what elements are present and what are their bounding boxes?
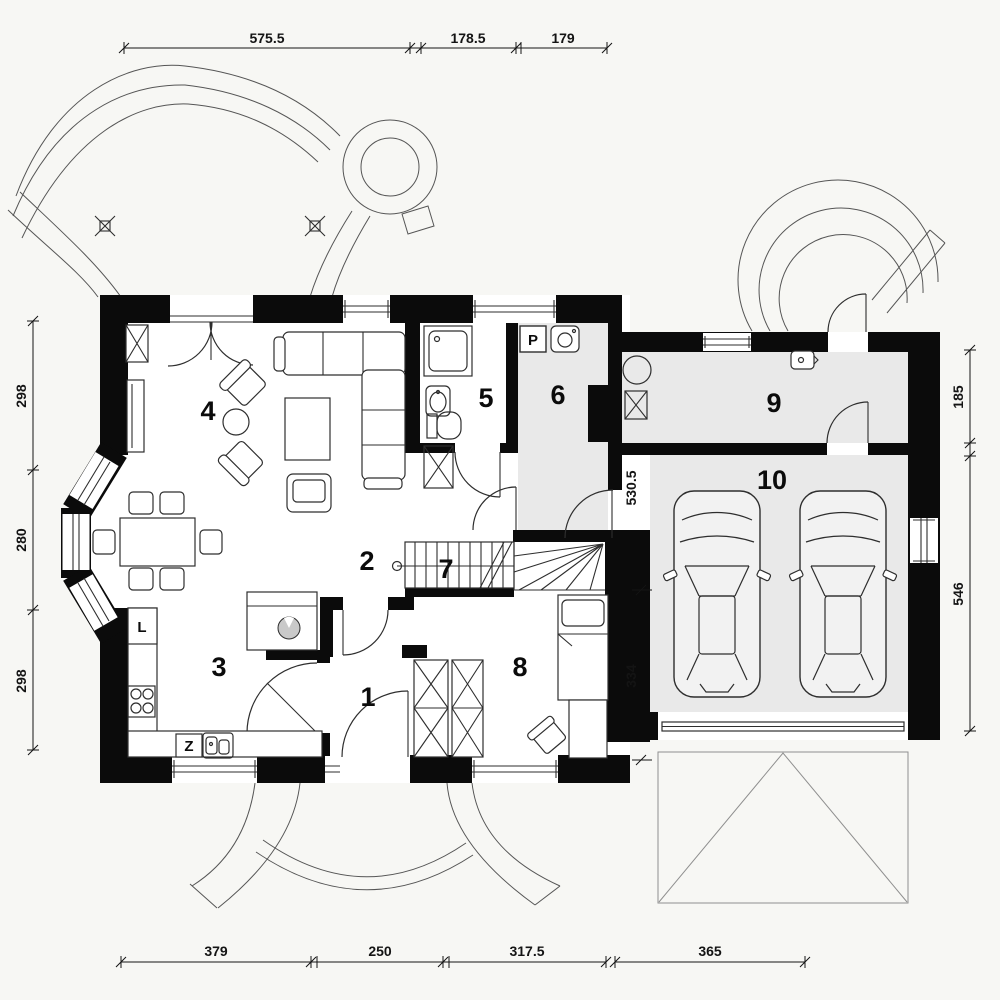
chair xyxy=(160,492,184,514)
room-label-9: 9 xyxy=(766,388,781,418)
path-end-cap xyxy=(402,206,434,234)
dimension-chain-bottom: 379 250 317.5 365 xyxy=(116,943,810,968)
chair xyxy=(200,530,222,554)
wardrobe xyxy=(452,660,483,757)
window xyxy=(703,333,751,351)
dimension-label: 546 xyxy=(950,582,966,606)
dimension-label: 365 xyxy=(698,943,722,959)
door-boiler-exterior xyxy=(828,294,866,332)
room-label-3: 3 xyxy=(211,652,226,682)
small-armchair xyxy=(287,474,331,512)
dining-table xyxy=(120,518,195,566)
landscaping-path-right xyxy=(738,180,945,331)
garage-door xyxy=(658,713,908,739)
fridge-marker: L xyxy=(137,619,146,636)
room-label-7: 7 xyxy=(438,554,453,584)
built-in-wardrobes xyxy=(414,660,483,757)
kitchen-counter-bottom xyxy=(128,731,322,757)
coffee-table xyxy=(285,398,330,460)
dimension-label: 530.5 xyxy=(623,470,639,505)
dishwasher-marker: Z xyxy=(184,738,193,755)
spiral-path-outer xyxy=(343,120,437,214)
dimension-chain-right: 185 546 xyxy=(950,345,976,736)
landscaping-terrace-arcs xyxy=(190,783,560,908)
floor-plan-page: L Z xyxy=(0,0,1000,1000)
room-label-6: 6 xyxy=(550,380,565,410)
boiler-room-shaded-floor xyxy=(622,352,908,443)
dresser xyxy=(569,700,607,758)
dimension-label: 185 xyxy=(950,385,966,409)
floor-plan-canvas: L Z xyxy=(0,0,1000,1000)
room-label-1: 1 xyxy=(360,682,375,712)
room-label-10: 10 xyxy=(757,465,787,495)
bed xyxy=(558,595,608,700)
spiral-path-inner xyxy=(361,138,419,196)
window xyxy=(343,296,390,322)
dimension-label: 298 xyxy=(13,384,29,408)
window xyxy=(325,756,340,782)
washing-machine xyxy=(551,326,579,352)
room-label-5: 5 xyxy=(478,383,493,413)
dimension-chain-top: 575.5 178.5 179 xyxy=(119,30,612,54)
dimension-chain-left: 298 280 298 xyxy=(13,316,39,755)
chair xyxy=(93,530,115,554)
window xyxy=(910,518,938,563)
dimension-label: 298 xyxy=(13,669,29,693)
dimension-label: 317.5 xyxy=(509,943,544,959)
dimension-label: 379 xyxy=(204,943,228,959)
chair xyxy=(129,492,153,514)
dimension-label: 334 xyxy=(623,664,639,688)
car-icon xyxy=(663,491,771,697)
car-icon xyxy=(789,491,897,697)
room-label-8: 8 xyxy=(512,652,527,682)
washer-marker: P xyxy=(528,332,538,349)
tree-marker-icon xyxy=(305,216,325,236)
tree-marker-icon xyxy=(95,216,115,236)
chair xyxy=(129,568,153,590)
window xyxy=(472,756,558,782)
roof-outline xyxy=(658,752,908,903)
landscaping-path-top-left xyxy=(8,65,437,297)
room-label-4: 4 xyxy=(200,396,215,426)
window xyxy=(473,296,556,322)
side-table xyxy=(223,409,249,435)
dimension-label: 575.5 xyxy=(249,30,284,46)
utility-sink xyxy=(791,351,818,369)
dimension-label: 250 xyxy=(368,943,392,959)
dimension-label: 178.5 xyxy=(450,30,485,46)
dimension-label: 280 xyxy=(13,528,29,552)
room-label-2: 2 xyxy=(359,546,374,576)
dimension-label: 179 xyxy=(551,30,575,46)
chair xyxy=(160,568,184,590)
window xyxy=(172,756,257,782)
wardrobe xyxy=(414,660,448,757)
